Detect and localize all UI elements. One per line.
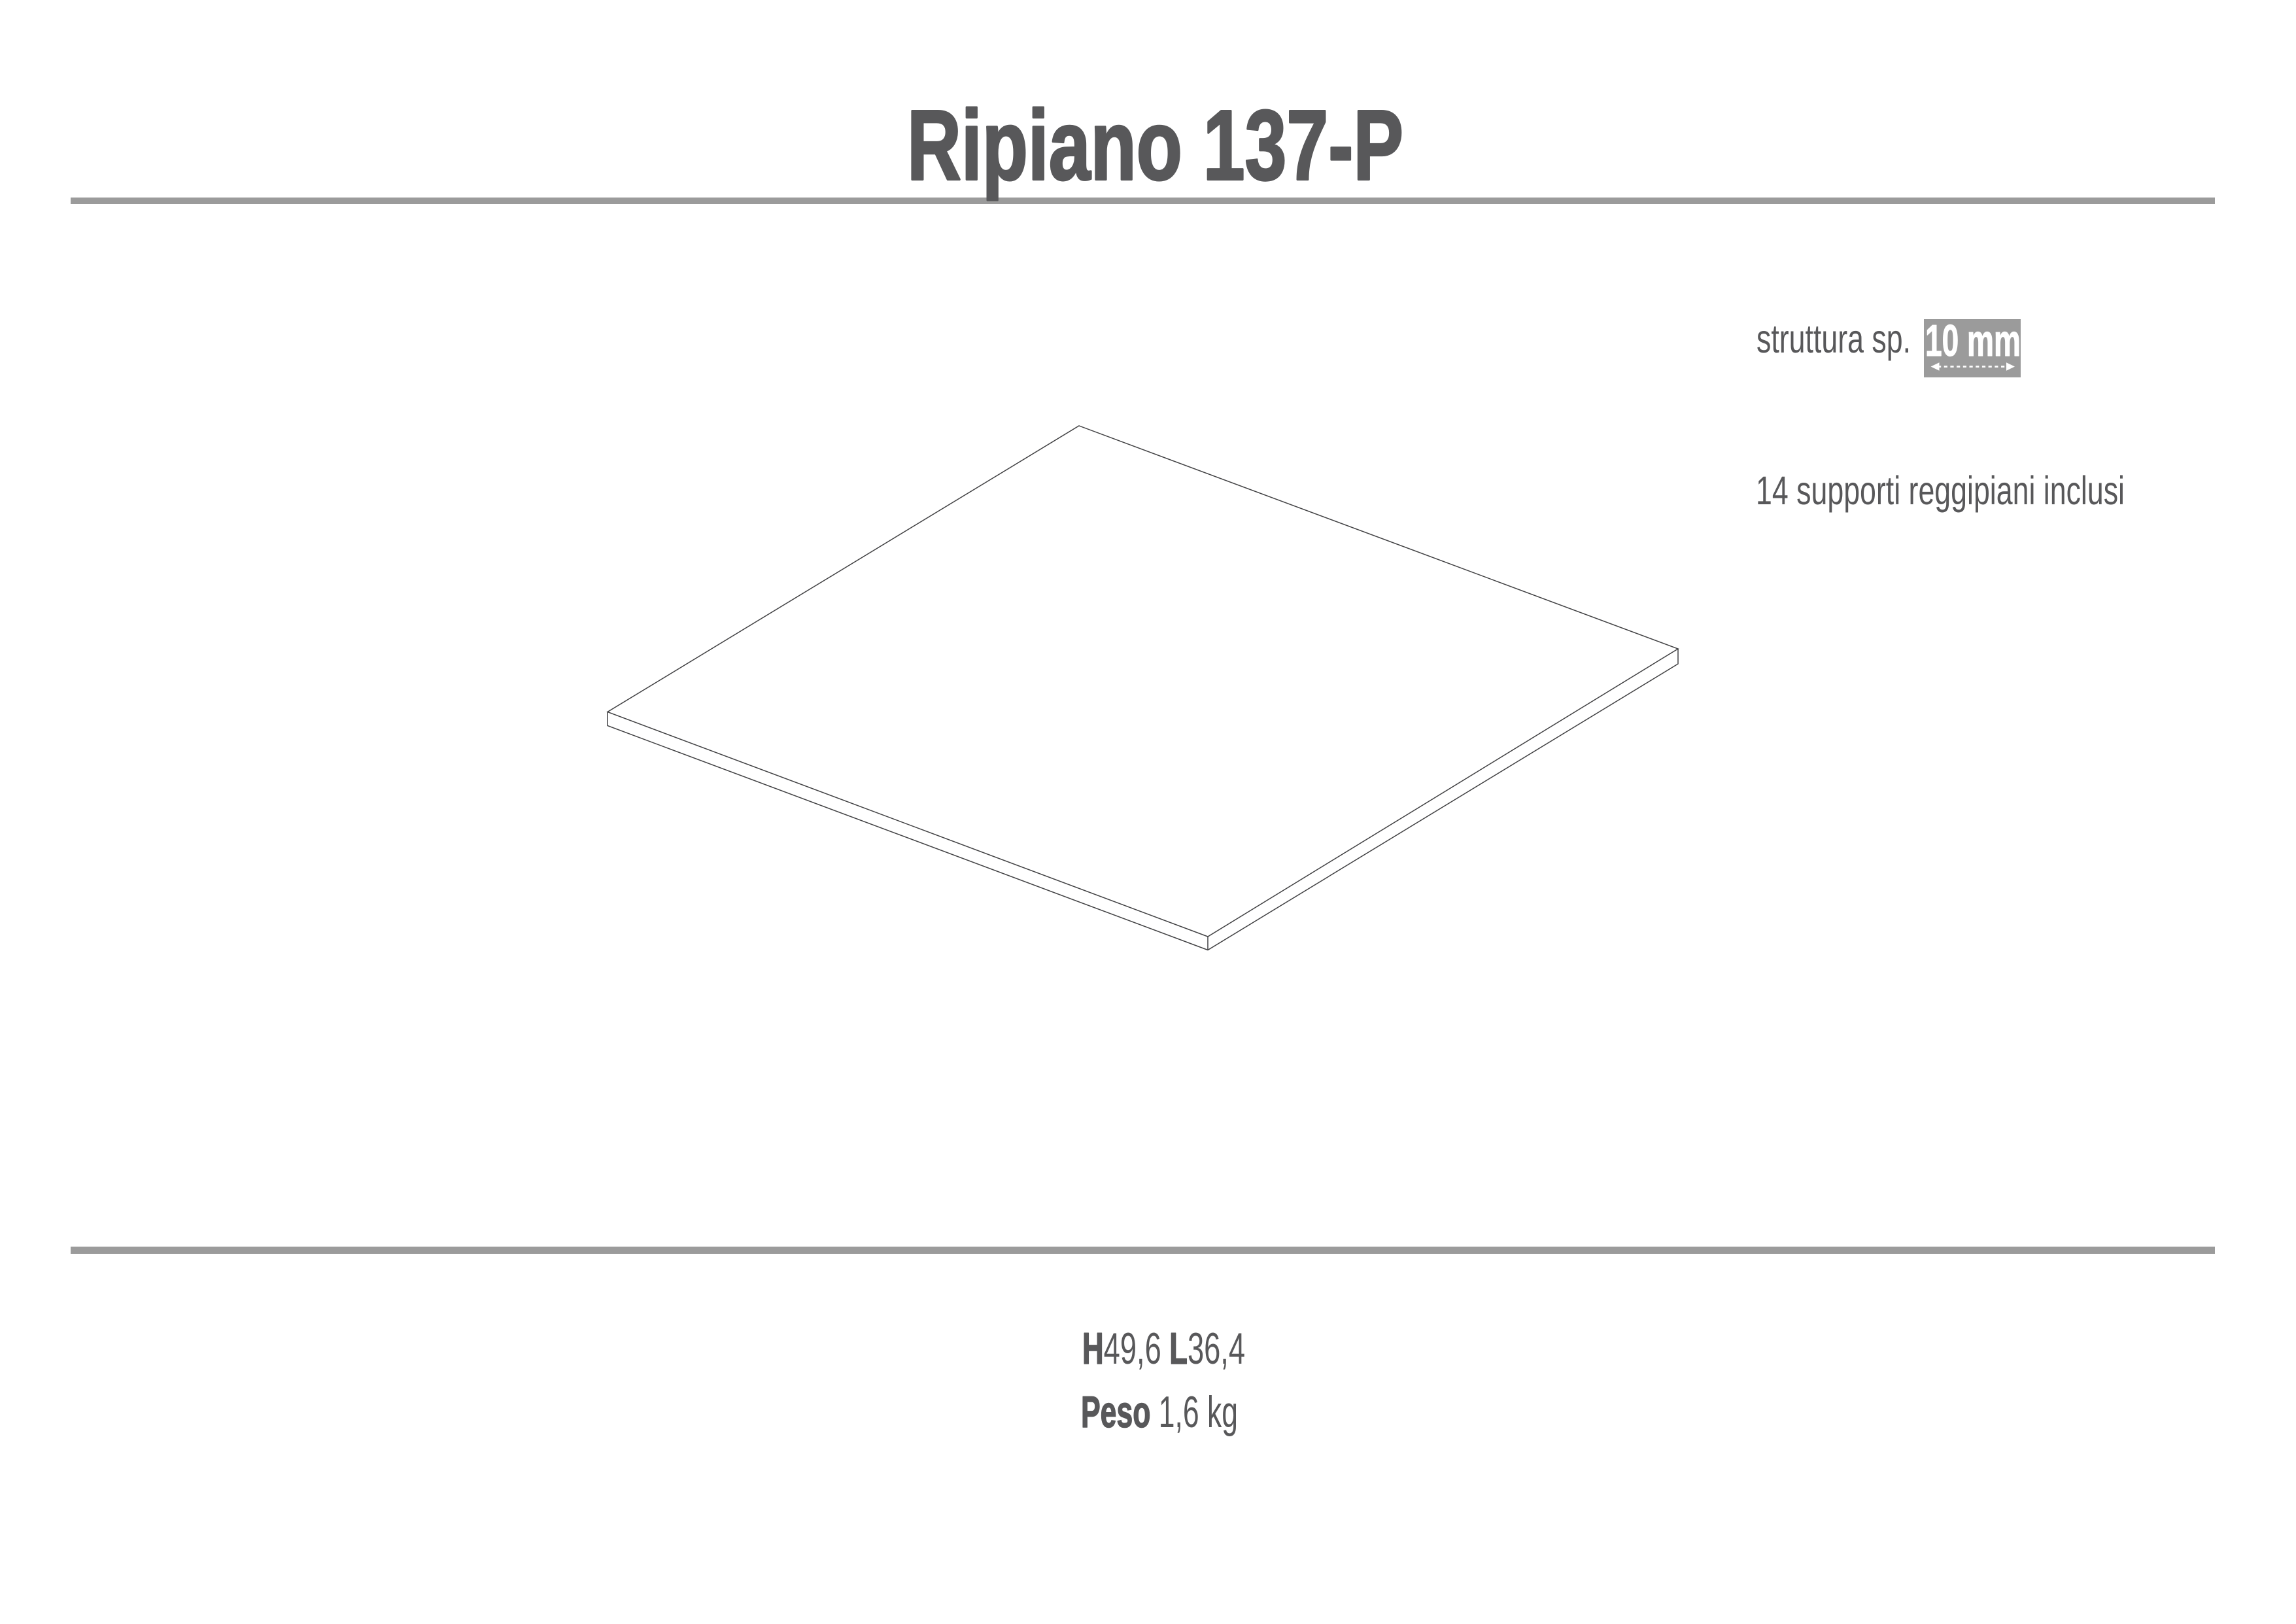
svg-text:14 supporti reggipiani inclusi: 14 supporti reggipiani inclusi [1756, 468, 2125, 513]
svg-text:H49,6 L36,4: H49,6 L36,4 [1082, 1324, 1245, 1373]
svg-text:struttura sp.: struttura sp. [1756, 317, 1911, 361]
svg-text:Peso 1,6 kg: Peso 1,6 kg [1081, 1387, 1238, 1437]
svg-text:Ripiano 137-P: Ripiano 137-P [907, 90, 1403, 201]
svg-text:10 mm: 10 mm [1925, 316, 2021, 366]
